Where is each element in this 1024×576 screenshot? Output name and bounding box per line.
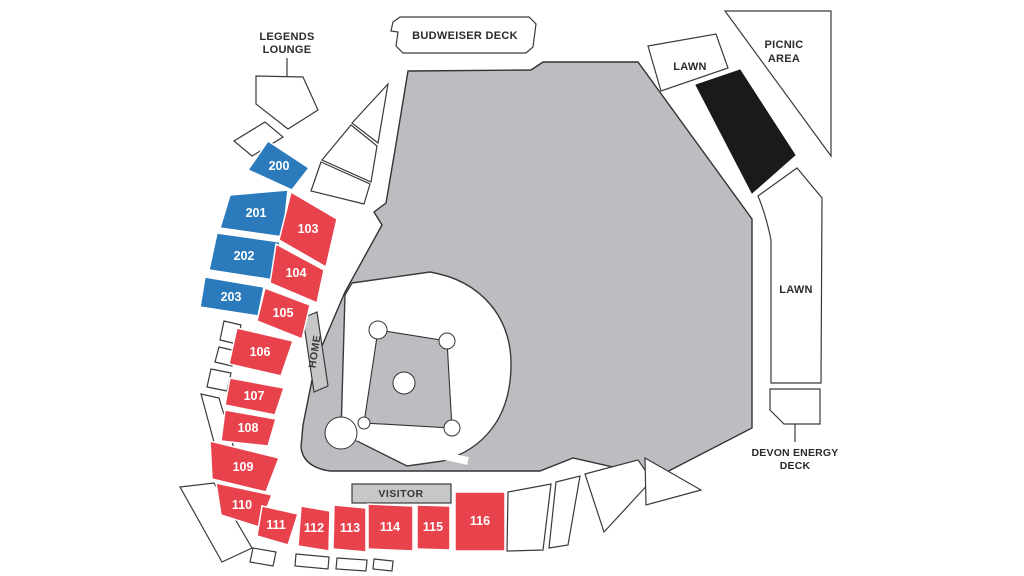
- suite-box: [336, 558, 367, 571]
- section-114[interactable]: 114: [368, 504, 413, 551]
- picnic-area-label-line1: PICNIC: [764, 39, 803, 51]
- lawn-right-label: LAWN: [779, 284, 813, 296]
- section-label: 106: [250, 345, 271, 359]
- terrace-section[interactable]: [549, 476, 580, 548]
- pitcher-mound: [393, 372, 415, 394]
- infield: [325, 272, 511, 466]
- terrace-section[interactable]: [507, 484, 551, 551]
- budweiser-deck[interactable]: BUDWEISER DECK: [391, 17, 536, 53]
- section-112[interactable]: 112: [298, 506, 330, 551]
- suite-box: [207, 369, 231, 391]
- devon-energy-deck[interactable]: DEVON ENERGY DECK: [752, 389, 839, 472]
- section-111[interactable]: 111: [257, 506, 298, 545]
- third-base-notch: [369, 321, 387, 339]
- section-202[interactable]: 202: [209, 233, 280, 280]
- section-label: 110: [232, 498, 252, 512]
- section-label: 202: [234, 249, 255, 263]
- visitor-dugout: VISITOR: [352, 484, 451, 503]
- section-label: 203: [221, 290, 242, 304]
- suite-box: [373, 559, 393, 571]
- section-label: 200: [269, 159, 290, 173]
- section-label: 103: [298, 222, 319, 236]
- section-label: 108: [238, 421, 259, 435]
- first-base-notch: [444, 420, 460, 436]
- home-plate-circle: [325, 417, 357, 449]
- section-label: 113: [340, 521, 360, 535]
- section-label: 105: [273, 306, 294, 320]
- stadium-seat-map: LEGENDS LOUNGE BUDWEISER DECK PICNIC ARE…: [0, 0, 1024, 576]
- section-label: 116: [470, 514, 490, 528]
- legends-lounge-label-line1: LEGENDS: [259, 31, 314, 43]
- lawn-right-shape[interactable]: [758, 168, 822, 383]
- section-115[interactable]: 115: [417, 505, 450, 550]
- section-label: 107: [244, 389, 265, 403]
- terrace-section[interactable]: [585, 460, 652, 532]
- lawn-right[interactable]: LAWN: [758, 168, 822, 383]
- section-label: 104: [286, 266, 307, 280]
- legends-lounge: LEGENDS LOUNGE: [256, 31, 318, 129]
- section-107[interactable]: 107: [225, 378, 284, 415]
- budweiser-deck-label: BUDWEISER DECK: [412, 30, 518, 42]
- section-label: 201: [246, 206, 267, 220]
- section-label: 114: [380, 520, 400, 534]
- legends-lounge-area[interactable]: [256, 76, 318, 129]
- home-corner-notch: [358, 417, 370, 429]
- devon-energy-deck-label-line1: DEVON ENERGY: [752, 447, 839, 459]
- devon-energy-deck-label-line2: DECK: [780, 460, 811, 472]
- section-201[interactable]: 201: [220, 190, 288, 237]
- section-108[interactable]: 108: [221, 410, 276, 446]
- suite-box: [295, 554, 329, 569]
- section-113[interactable]: 113: [333, 505, 366, 552]
- section-label: 111: [266, 518, 286, 532]
- devon-energy-deck-shape[interactable]: [770, 389, 820, 424]
- section-203[interactable]: 203: [200, 277, 264, 316]
- second-base-notch: [439, 333, 455, 349]
- picnic-area-label-line2: AREA: [768, 53, 800, 65]
- section-116[interactable]: 116: [455, 492, 505, 551]
- section-label: 109: [233, 460, 254, 474]
- lawn-top-label: LAWN: [673, 61, 707, 73]
- section-106[interactable]: 106: [229, 328, 293, 376]
- section-label: 115: [423, 520, 443, 534]
- legends-lounge-label-line2: LOUNGE: [263, 44, 312, 56]
- section-label: 112: [304, 521, 324, 535]
- visitor-dugout-label: VISITOR: [378, 488, 423, 500]
- suite-box: [250, 548, 276, 566]
